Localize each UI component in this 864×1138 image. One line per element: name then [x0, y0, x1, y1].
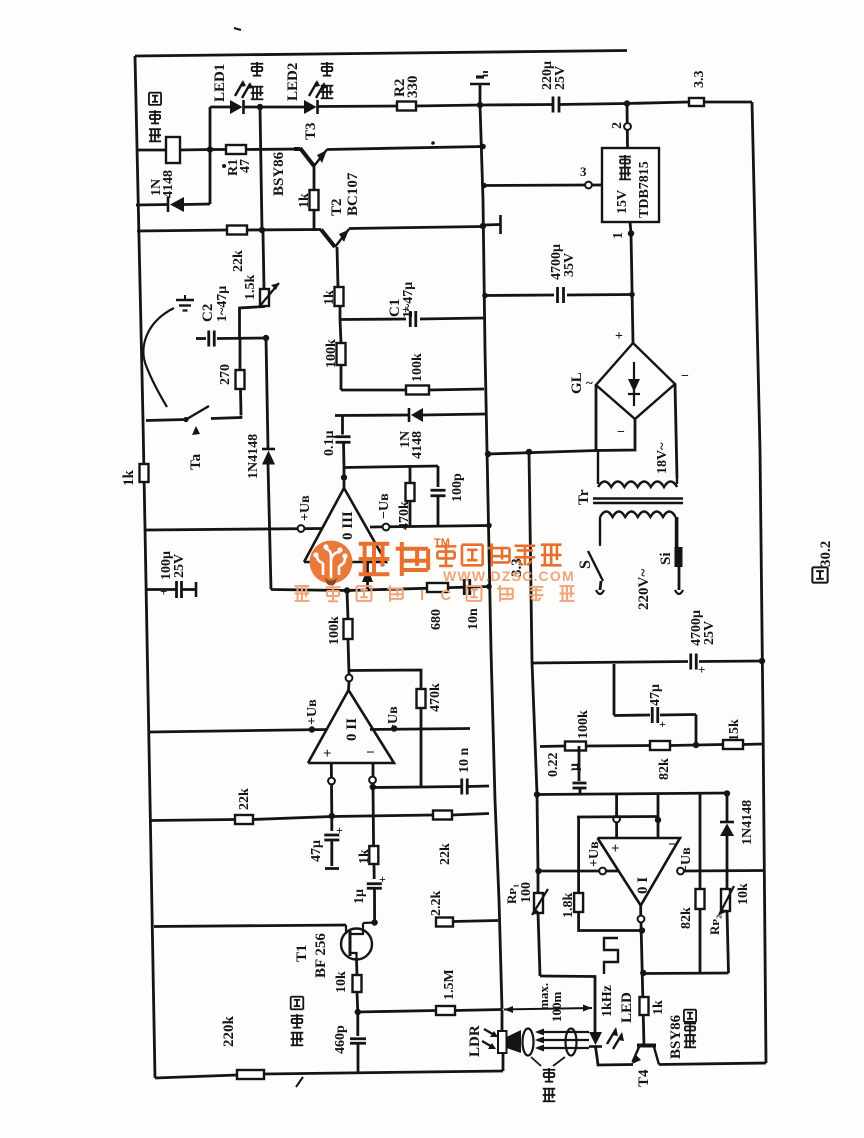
svg-text:S: S — [577, 560, 594, 569]
svg-text:22k: 22k — [237, 788, 252, 810]
svg-text:460p: 460p — [333, 1025, 348, 1054]
svg-text:0 II: 0 II — [344, 718, 360, 741]
svg-text:+Uʙ: +Uʙ — [298, 495, 313, 521]
svg-text:1k: 1k — [297, 193, 312, 208]
svg-text:25V: 25V — [702, 621, 717, 645]
svg-text:1.5M: 1.5M — [442, 969, 457, 1000]
svg-text:+: + — [611, 841, 620, 857]
svg-text:BSY86: BSY86 — [668, 1014, 684, 1059]
svg-text:100k: 100k — [324, 339, 339, 368]
svg-text:Tr: Tr — [576, 489, 592, 505]
svg-text:470k: 470k — [397, 501, 412, 530]
svg-text:100m: 100m — [549, 992, 564, 1023]
svg-text:330: 330 — [405, 76, 421, 99]
svg-text:C2: C2 — [200, 304, 216, 322]
svg-text:82k: 82k — [657, 758, 672, 780]
svg-text:GL: GL — [569, 372, 585, 394]
svg-text:4148: 4148 — [161, 170, 176, 198]
svg-text:+: + — [160, 584, 167, 599]
svg-text:μ: μ — [567, 763, 582, 771]
svg-text:LED1: LED1 — [212, 64, 228, 102]
svg-text:1N4148: 1N4148 — [246, 434, 261, 479]
svg-text:+: + — [336, 823, 343, 837]
svg-text:1k: 1k — [121, 470, 137, 487]
svg-text:T3: T3 — [303, 122, 319, 140]
svg-text:1.5k: 1.5k — [243, 275, 258, 301]
svg-text:+: + — [379, 872, 386, 886]
svg-text:T1: T1 — [294, 944, 310, 962]
svg-text:Rᴘ₂: Rᴘ₂ — [707, 915, 722, 935]
svg-text:0 I: 0 I — [635, 877, 651, 894]
svg-text:47μ: 47μ — [648, 684, 663, 706]
svg-text:470k: 470k — [428, 683, 443, 712]
svg-text:680: 680 — [429, 609, 444, 630]
svg-text:1~47μ: 1~47μ — [401, 282, 416, 318]
svg-text:3: 3 — [580, 164, 587, 179]
svg-text:25V: 25V — [172, 554, 187, 578]
svg-text:1k: 1k — [651, 1000, 666, 1015]
svg-text:18V~: 18V~ — [655, 442, 670, 474]
svg-text:47: 47 — [238, 159, 253, 173]
svg-text:Si: Si — [658, 552, 674, 565]
svg-text:0 III: 0 III — [340, 511, 356, 540]
svg-text:100p: 100p — [450, 473, 465, 502]
svg-text:30.2: 30.2 — [818, 541, 834, 567]
svg-text:22k: 22k — [231, 250, 246, 272]
svg-text:T4: T4 — [636, 1069, 652, 1087]
svg-text:1k: 1k — [322, 290, 337, 305]
svg-text:BSY86: BSY86 — [271, 151, 287, 196]
svg-text:−Uʙ: −Uʙ — [386, 706, 401, 732]
svg-text:22k: 22k — [438, 843, 453, 865]
svg-text:35V: 35V — [562, 253, 577, 277]
svg-text:LED2: LED2 — [285, 63, 301, 101]
svg-text:+: + — [323, 746, 332, 762]
svg-text:1μ: 1μ — [352, 889, 367, 904]
svg-text:−Uʙ: −Uʙ — [377, 493, 392, 519]
svg-text:Rᴘ₁: Rᴘ₁ — [504, 884, 519, 904]
svg-text:1k: 1k — [357, 849, 372, 864]
svg-text:+Uʙ: +Uʙ — [305, 699, 320, 725]
svg-text:0.1μ: 0.1μ — [322, 431, 337, 457]
svg-text:15k: 15k — [727, 719, 742, 741]
svg-text:10n: 10n — [466, 608, 481, 630]
svg-text:−: − — [617, 425, 625, 440]
svg-text:−: − — [366, 745, 375, 761]
svg-text:270: 270 — [218, 364, 233, 385]
svg-text:2: 2 — [610, 122, 625, 129]
svg-text:100k: 100k — [410, 353, 425, 382]
svg-text:15V: 15V — [615, 190, 630, 214]
svg-text:82k: 82k — [679, 907, 694, 929]
svg-text:+Uʙ: +Uʙ — [587, 841, 602, 867]
svg-text:+: + — [698, 662, 705, 677]
svg-text:2.2k: 2.2k — [429, 891, 444, 917]
svg-text:~: ~ — [586, 375, 593, 390]
svg-text:TDB7815: TDB7815 — [637, 161, 652, 218]
svg-text:47μ: 47μ — [309, 840, 324, 862]
svg-text:1kHz: 1kHz — [600, 985, 615, 1017]
svg-text:3.3: 3.3 — [692, 71, 707, 89]
svg-text:10k: 10k — [736, 883, 751, 905]
svg-text:T2: T2 — [329, 198, 345, 216]
svg-text:BC107: BC107 — [345, 172, 361, 216]
svg-text:LED: LED — [619, 992, 635, 1023]
svg-text:220V~: 220V~ — [636, 569, 652, 610]
svg-text:BF 256: BF 256 — [313, 933, 329, 978]
svg-text:I C: I C — [420, 587, 457, 604]
svg-text:10 n: 10 n — [457, 748, 472, 774]
svg-text:100k: 100k — [327, 616, 342, 645]
svg-text:1: 1 — [611, 232, 626, 239]
svg-text:4148: 4148 — [410, 431, 425, 459]
svg-text:1~47μ: 1~47μ — [215, 286, 230, 322]
svg-text:220k: 220k — [221, 1016, 237, 1048]
svg-text:+: + — [659, 717, 666, 731]
svg-text:LDR: LDR — [467, 1025, 483, 1057]
svg-text:−: − — [668, 837, 677, 853]
svg-text:100k: 100k — [576, 710, 591, 739]
svg-text:0.22: 0.22 — [546, 753, 561, 778]
svg-text:−: − — [681, 369, 689, 384]
svg-text:1.8k: 1.8k — [561, 893, 576, 919]
svg-text:25V: 25V — [553, 66, 568, 90]
svg-text:100: 100 — [519, 882, 534, 903]
svg-text:WWW.DZSC.COM: WWW.DZSC.COM — [443, 568, 575, 584]
svg-text:+: + — [615, 329, 623, 344]
svg-text:Ta: Ta — [188, 453, 204, 470]
svg-text:1N4148: 1N4148 — [740, 800, 755, 845]
svg-text:10k: 10k — [334, 971, 349, 993]
svg-text:−Uʙ: −Uʙ — [679, 847, 694, 873]
